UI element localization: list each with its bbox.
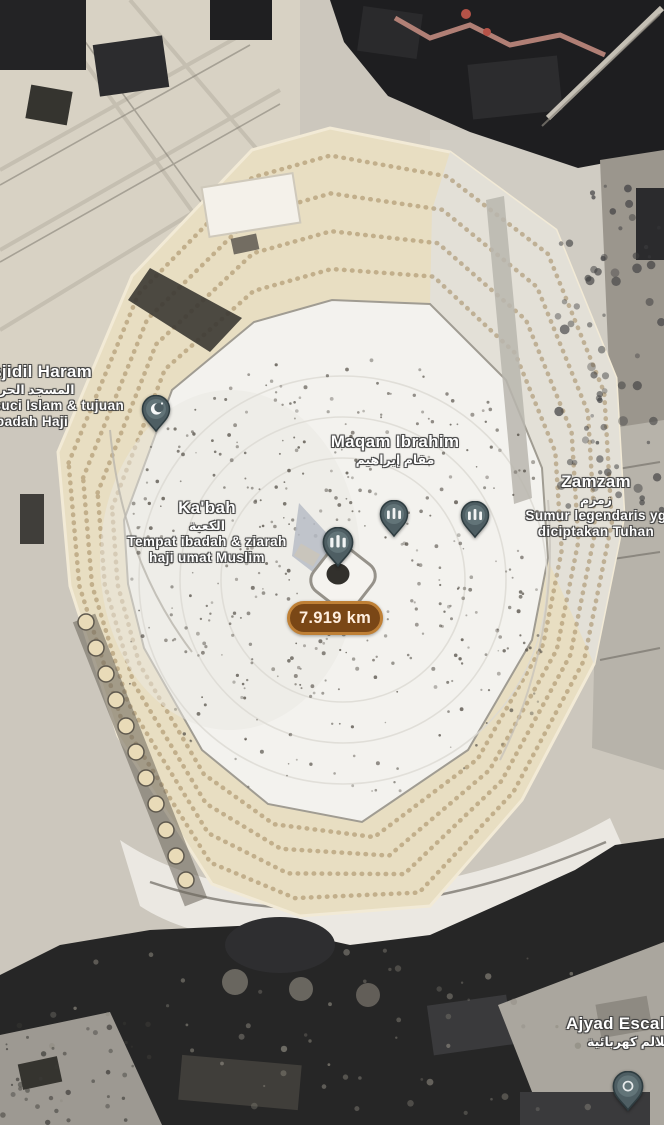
- poi-arabic: مقام إبراهيم: [331, 453, 460, 467]
- poi-label-zamzam[interactable]: Zamzam زمزم Sumur legendaris yg diciptak…: [525, 472, 664, 540]
- poi-name: Ajyad Escalator: [566, 1014, 664, 1034]
- poi-arabic: الكعبة: [127, 519, 286, 533]
- poi-desc: ibadah Haji: [0, 414, 124, 430]
- poi-arabic: سلالم كهربائية: [566, 1035, 664, 1049]
- kabah-pin[interactable]: [321, 527, 355, 568]
- poi-label-maqam-ibrahim[interactable]: Maqam Ibrahim مقام إبراهيم: [331, 432, 460, 467]
- poi-name: Maqam Ibrahim: [331, 432, 460, 452]
- poi-arabic: المسجد الحرام: [0, 383, 124, 397]
- poi-desc: Sumur legendaris yg: [525, 508, 664, 524]
- distance-measurement-badge: 7.919 km: [287, 601, 383, 635]
- poi-label-ajyad-escalator[interactable]: Ajyad Escalator سلالم كهربائية: [566, 1014, 664, 1049]
- distance-value: 7.919 km: [299, 609, 371, 628]
- poi-label-masjidil-haram[interactable]: Masjidil Haram المسجد الحرام Situs tersu…: [0, 362, 124, 430]
- poi-name: Ka'bah: [127, 498, 286, 518]
- maqam-ibrahim-pin[interactable]: [379, 500, 409, 538]
- masjidil-haram-pin[interactable]: [141, 395, 171, 433]
- poi-desc: Tempat ibadah & ziarah: [127, 534, 286, 550]
- poi-desc: haji umat Muslim: [127, 550, 286, 566]
- ajyad-escalator-pin[interactable]: [611, 1071, 645, 1112]
- poi-desc: diciptakan Tuhan: [525, 524, 664, 540]
- video-frame: Masjidil Haram المسجد الحرام Situs tersu…: [0, 0, 664, 1125]
- poi-label-kabah[interactable]: Ka'bah الكعبة Tempat ibadah & ziarah haj…: [127, 498, 286, 566]
- zamzam-pin[interactable]: [460, 501, 490, 539]
- poi-arabic: زمزم: [525, 493, 664, 507]
- poi-desc: Situs tersuci Islam & tujuan: [0, 398, 124, 414]
- poi-name: Zamzam: [525, 472, 664, 492]
- poi-name: Masjidil Haram: [0, 362, 124, 382]
